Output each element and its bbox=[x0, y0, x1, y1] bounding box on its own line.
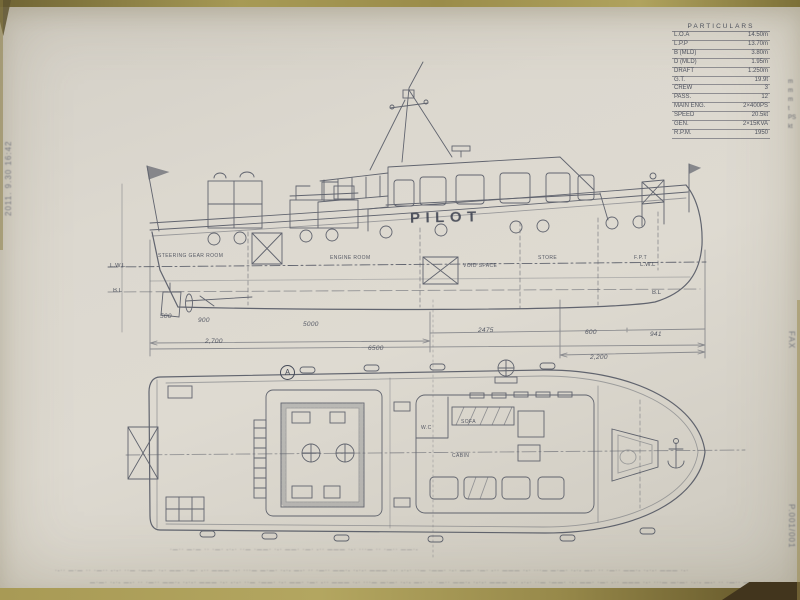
spec-table: PARTICULARS L.O.A14.50m L.P.P13.70m B (M… bbox=[672, 23, 770, 139]
compartment-label-store: STORE bbox=[538, 255, 557, 261]
spec-label: L.P.P bbox=[674, 41, 688, 49]
spec-value: 20.5kt bbox=[752, 112, 768, 120]
plan-view-drawing bbox=[126, 370, 745, 542]
spec-row: B (MLD)3.80m bbox=[672, 50, 770, 59]
table-surface-bottom-edge bbox=[0, 588, 800, 600]
room-label-cabin: CABIN bbox=[452, 453, 469, 459]
spec-row: SPEED20.5kt bbox=[672, 112, 770, 121]
photo-of-fax-drawing: PILOT STEERING GEAR ROOM ENGINE ROOM VOI… bbox=[0, 0, 800, 600]
dim-2475: 2475 bbox=[478, 327, 494, 334]
spec-label: PASS. bbox=[674, 94, 691, 102]
table-surface-top-edge bbox=[0, 0, 800, 7]
dim-900: 900 bbox=[198, 317, 210, 324]
waterline-label-lwl-fwd: L.W.L bbox=[640, 262, 655, 268]
spec-value: 12 bbox=[761, 94, 768, 102]
spec-row: MAIN ENG.2×400PS bbox=[672, 103, 770, 112]
spec-value: 2×15KVA bbox=[743, 121, 768, 129]
spec-label: GEN. bbox=[674, 121, 689, 129]
spec-row: L.O.A14.50m bbox=[672, 32, 770, 41]
spec-label: CREW bbox=[674, 85, 692, 93]
fax-footer-smear-1: ·-·· —·— ·· ·—·· -·-· ··— ·——· ·-· ——· ·… bbox=[55, 568, 770, 574]
fax-header-left: 2011. 9.30 16:42 bbox=[4, 141, 13, 216]
fax-label-right: FAX bbox=[787, 331, 796, 349]
spec-label: B (MLD) bbox=[674, 50, 696, 58]
spec-label: R.P.M. bbox=[674, 130, 692, 138]
spec-label: MAIN ENG. bbox=[674, 103, 705, 111]
compartment-label-engine: ENGINE ROOM bbox=[330, 255, 371, 261]
spec-value: 19.9t bbox=[755, 77, 768, 85]
plan-caption-smear: ·—·· —·— ·· ·—· -·-· ··— ·——· ·-· ——· ·—… bbox=[170, 547, 420, 553]
dim-600: 600 bbox=[585, 329, 597, 336]
spec-value: 3 bbox=[765, 85, 768, 93]
spec-units-fragment: m m m t PS kt bbox=[788, 78, 796, 132]
dim-6500: 6500 bbox=[368, 345, 384, 352]
spec-row: GEN.2×15KVA bbox=[672, 121, 770, 130]
waterline-label-bl-fwd: B.L bbox=[652, 290, 661, 296]
spec-row: DRAFT1.250m bbox=[672, 68, 770, 77]
compartment-label-steering: STEERING GEAR ROOM bbox=[158, 253, 223, 259]
hull-name-text: PILOT bbox=[410, 208, 482, 226]
section-marker-a: A bbox=[280, 365, 295, 380]
spec-row: R.P.M.1950 bbox=[672, 130, 770, 139]
room-label-sofa: SOFA bbox=[461, 419, 476, 425]
compartment-label-void: VOID SPACE bbox=[463, 263, 497, 269]
compartment-label-fpt: F.P.T bbox=[634, 255, 647, 261]
spec-label: SPEED bbox=[674, 112, 694, 120]
spec-value: 2×400PS bbox=[743, 103, 768, 111]
spec-table-title: PARTICULARS bbox=[672, 23, 770, 32]
spec-row: D (MLD)1.95m bbox=[672, 59, 770, 68]
fax-page-number: P.001/001 bbox=[787, 504, 796, 548]
spec-label: DRAFT bbox=[674, 68, 694, 76]
table-surface-left-edge bbox=[0, 0, 3, 250]
dim-500: 500 bbox=[160, 313, 172, 320]
spec-value: 1.250m bbox=[748, 68, 768, 76]
room-label-wc: W.C bbox=[421, 425, 432, 431]
dim-2200: 2,200 bbox=[590, 354, 608, 361]
spec-label: G.T. bbox=[674, 77, 685, 85]
dim-941: 941 bbox=[650, 331, 662, 338]
spec-value: 1950 bbox=[755, 130, 768, 138]
spec-value: 1.95m bbox=[751, 59, 768, 67]
spec-label: D (MLD) bbox=[674, 59, 697, 67]
spec-row: CREW3 bbox=[672, 85, 770, 94]
waterline-label-bl-aft: B.L bbox=[113, 288, 122, 294]
spec-label: L.O.A bbox=[674, 32, 689, 40]
spec-row: L.P.P13.70m bbox=[672, 41, 770, 50]
spec-row: G.T.19.9t bbox=[672, 77, 770, 86]
dim-2700: 2,700 bbox=[205, 338, 223, 345]
dim-5000: 5000 bbox=[303, 321, 319, 328]
side-view-drawing bbox=[108, 62, 706, 358]
fax-footer-smear-2: —·—· ·-·- —-· ·· ·—·· ——·- ·-·-· ——— ·-·… bbox=[90, 580, 780, 586]
spec-value: 3.80m bbox=[751, 50, 768, 58]
spec-value: 14.50m bbox=[748, 32, 768, 40]
spec-row: PASS.12 bbox=[672, 94, 770, 103]
waterline-label-lwl-aft: L.W.L bbox=[110, 263, 125, 269]
spec-value: 13.70m bbox=[748, 41, 768, 49]
fax-paper: PILOT STEERING GEAR ROOM ENGINE ROOM VOI… bbox=[0, 6, 800, 589]
